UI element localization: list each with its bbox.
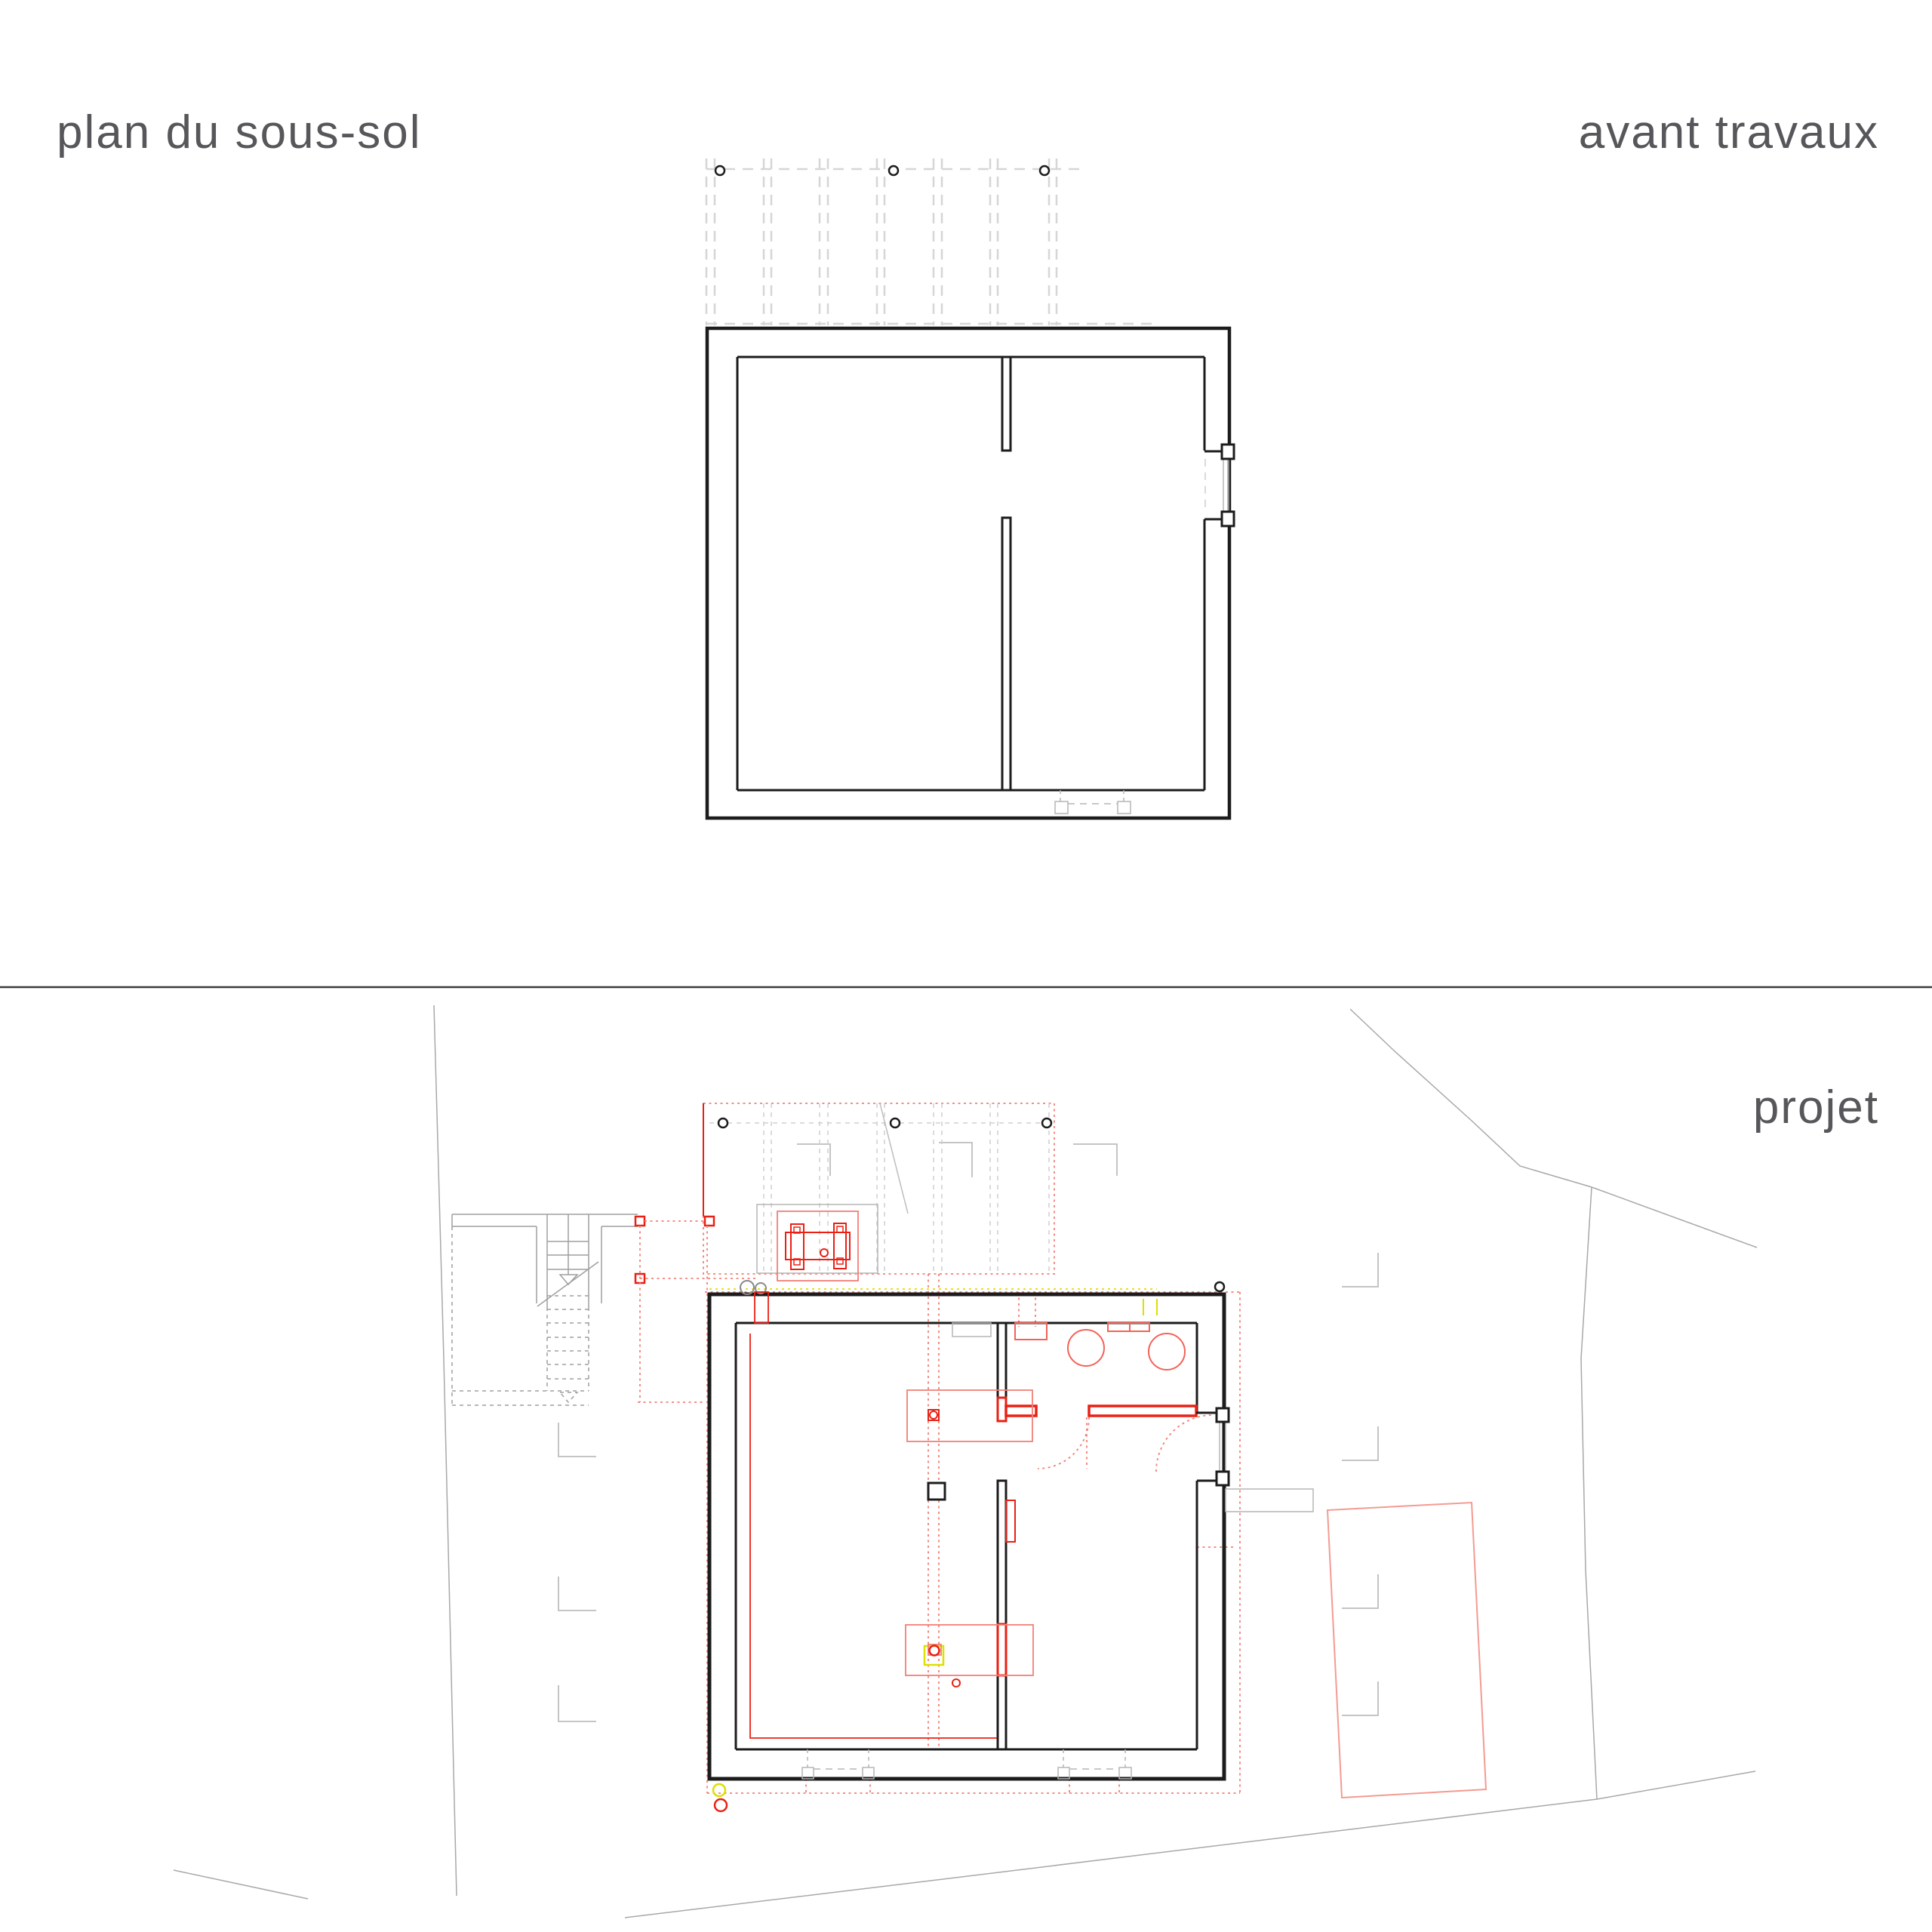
- level-marker-circle: [715, 1799, 727, 1811]
- column-post: [928, 1483, 945, 1500]
- staircase: [452, 1214, 638, 1405]
- bathroom-fixtures: [1015, 1323, 1185, 1370]
- new-lining-left-room: [750, 1334, 997, 1738]
- door-swing-arc-left: [1038, 1417, 1089, 1469]
- proposed-annex-outline: [1327, 1503, 1486, 1798]
- pergola-grid-dashed: [706, 158, 1155, 325]
- utility-pipes: [740, 1281, 768, 1323]
- exterior-step-gray: [1226, 1489, 1313, 1512]
- interior-wall-top-plan: [1002, 357, 1011, 790]
- pergola-post-circles: [715, 166, 1049, 175]
- inner-walls-project: [736, 1323, 1217, 1749]
- bottom-window-top-plan: [1055, 790, 1131, 814]
- new-post-squares: [635, 1217, 714, 1283]
- pergola-grid-project: [709, 1103, 1054, 1274]
- bottom-windows-project: [802, 1749, 1131, 1779]
- door-swing-arc-right: [1156, 1415, 1213, 1472]
- interior-wall-project: [998, 1323, 1006, 1749]
- outer-wall-top-plan: [707, 328, 1229, 818]
- corner-marks: [558, 1143, 1378, 1721]
- outdoor-equipment: [757, 1204, 878, 1281]
- existing-opening-gray: [952, 1323, 991, 1337]
- architectural-drawing: [0, 0, 1932, 1932]
- red-dotted-lines: [638, 1103, 1240, 1793]
- bottom-plan-project: [174, 1005, 1757, 1918]
- outer-wall-project: [709, 1294, 1224, 1779]
- new-wall-piece: [1006, 1500, 1015, 1542]
- corner-post-circle: [1215, 1282, 1224, 1291]
- top-plan-existing: [706, 158, 1234, 818]
- inner-walls-top-plan: [737, 357, 1222, 790]
